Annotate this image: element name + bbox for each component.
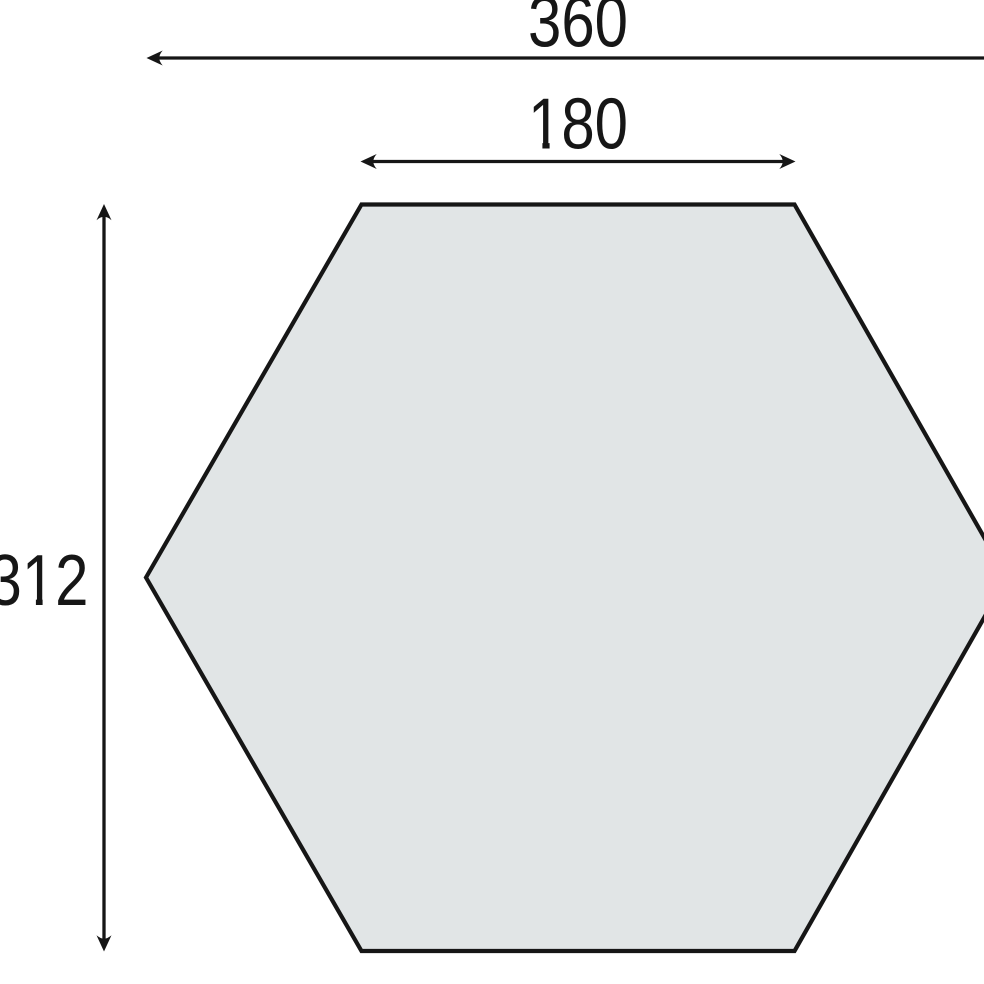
svg-text:180: 180 (528, 84, 628, 165)
svg-text:312: 312 (0, 540, 89, 621)
svg-text:360: 360 (528, 0, 628, 63)
